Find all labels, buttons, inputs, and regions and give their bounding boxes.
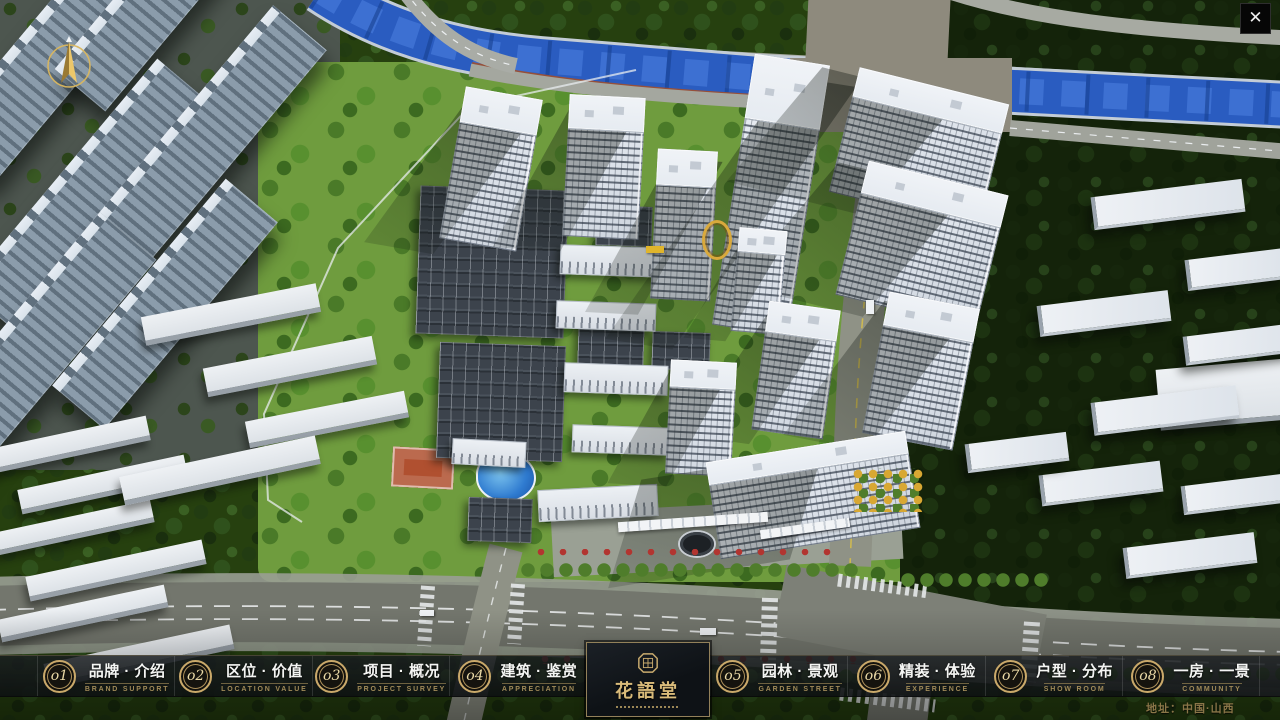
nav-label-zh: 项目 · 概况 <box>363 660 440 681</box>
project-logo-title: 花語堂 <box>615 677 681 703</box>
nav-label-en: SHOW ROOM <box>1044 683 1106 693</box>
nav-label-en: COMMUNITY <box>1182 683 1241 693</box>
apartment-slab <box>564 362 669 396</box>
nav-label-en: EXPERIENCE <box>906 683 969 693</box>
nav-label-zh: 品牌 · 介绍 <box>89 660 166 681</box>
vehicle <box>420 610 434 616</box>
nav-label-en: GARDEN STREET <box>758 683 841 693</box>
highrise-tower <box>562 94 645 240</box>
close-button[interactable]: ✕ <box>1240 3 1271 34</box>
shuttle-bus <box>646 246 664 253</box>
nav-item-unit-distribution[interactable]: o7 户型 · 分布SHOW ROOM <box>985 656 1122 696</box>
nav-number-badge: o5 <box>716 660 749 693</box>
compass-icon <box>41 36 97 92</box>
nav-number-badge: o2 <box>179 660 212 693</box>
nav-label-en: APPRECIATION <box>502 683 576 693</box>
street-trees <box>900 572 1050 588</box>
nav-number-badge: o7 <box>994 660 1027 693</box>
nav-number-badge: o8 <box>1131 660 1164 693</box>
nav-number-badge: o4 <box>458 660 491 693</box>
nav-label-zh: 一房 · 一景 <box>1173 660 1250 681</box>
nav-number-badge: o6 <box>857 660 890 693</box>
nav-label-zh: 建筑 · 鉴赏 <box>500 660 577 681</box>
nav-item-interior-experience[interactable]: o6 精装 · 体验EXPERIENCE <box>847 656 984 696</box>
street-trees <box>520 562 860 579</box>
nav-item-room-view[interactable]: o8 一房 · 一景COMMUNITY <box>1122 656 1260 696</box>
nav-item-project-survey[interactable]: o3 项目 · 概况PROJECT SURVEY <box>312 656 449 696</box>
logo-subtitle-rule <box>616 706 680 708</box>
vehicle <box>866 300 874 314</box>
nav-label-en: BRAND SUPPORT <box>85 683 169 693</box>
nav-label-zh: 区位 · 价值 <box>226 660 303 681</box>
gold-sculpture <box>702 220 732 260</box>
nav-item-brand-intro[interactable]: o1 品牌 · 介绍BRAND SUPPORT <box>37 656 174 696</box>
nav-item-location-value[interactable]: o2 区位 · 价值LOCATION VALUE <box>174 656 311 696</box>
nav-item-garden-landscape[interactable]: o5 园林 · 景观GARDEN STREET <box>710 656 847 696</box>
nav-number-badge: o3 <box>315 660 348 693</box>
apartment-slab <box>451 438 526 468</box>
nav-label-zh: 精装 · 体验 <box>899 660 976 681</box>
nav-label-en: LOCATION VALUE <box>221 683 307 693</box>
presentation-window: ✕ o1 品牌 · 介绍BRAND SUPPORT o2 区位 · 价值LOCA… <box>0 0 1280 720</box>
gold-shrubs <box>852 468 926 512</box>
gatehouse-roof <box>467 497 532 543</box>
bottom-menu-bar: o1 品牌 · 介绍BRAND SUPPORT o2 区位 · 价值LOCATI… <box>0 655 1280 697</box>
nav-number-badge: o1 <box>43 660 76 693</box>
masterplan-3d-view[interactable] <box>0 0 1280 720</box>
nav-label-zh: 园林 · 景观 <box>762 660 839 681</box>
nav-item-architecture[interactable]: o4 建筑 · 鉴赏APPRECIATION <box>449 656 586 696</box>
project-logo-panel[interactable]: 花語堂 <box>586 642 710 717</box>
vehicle <box>700 628 716 635</box>
parked-cars <box>536 549 836 556</box>
nav-label-zh: 户型 · 分布 <box>1036 660 1113 681</box>
close-icon: ✕ <box>1248 8 1262 28</box>
seal-icon <box>637 652 659 674</box>
project-address: 地址：中国·山西 <box>1146 700 1235 716</box>
nav-label-en: PROJECT SURVEY <box>357 683 446 693</box>
